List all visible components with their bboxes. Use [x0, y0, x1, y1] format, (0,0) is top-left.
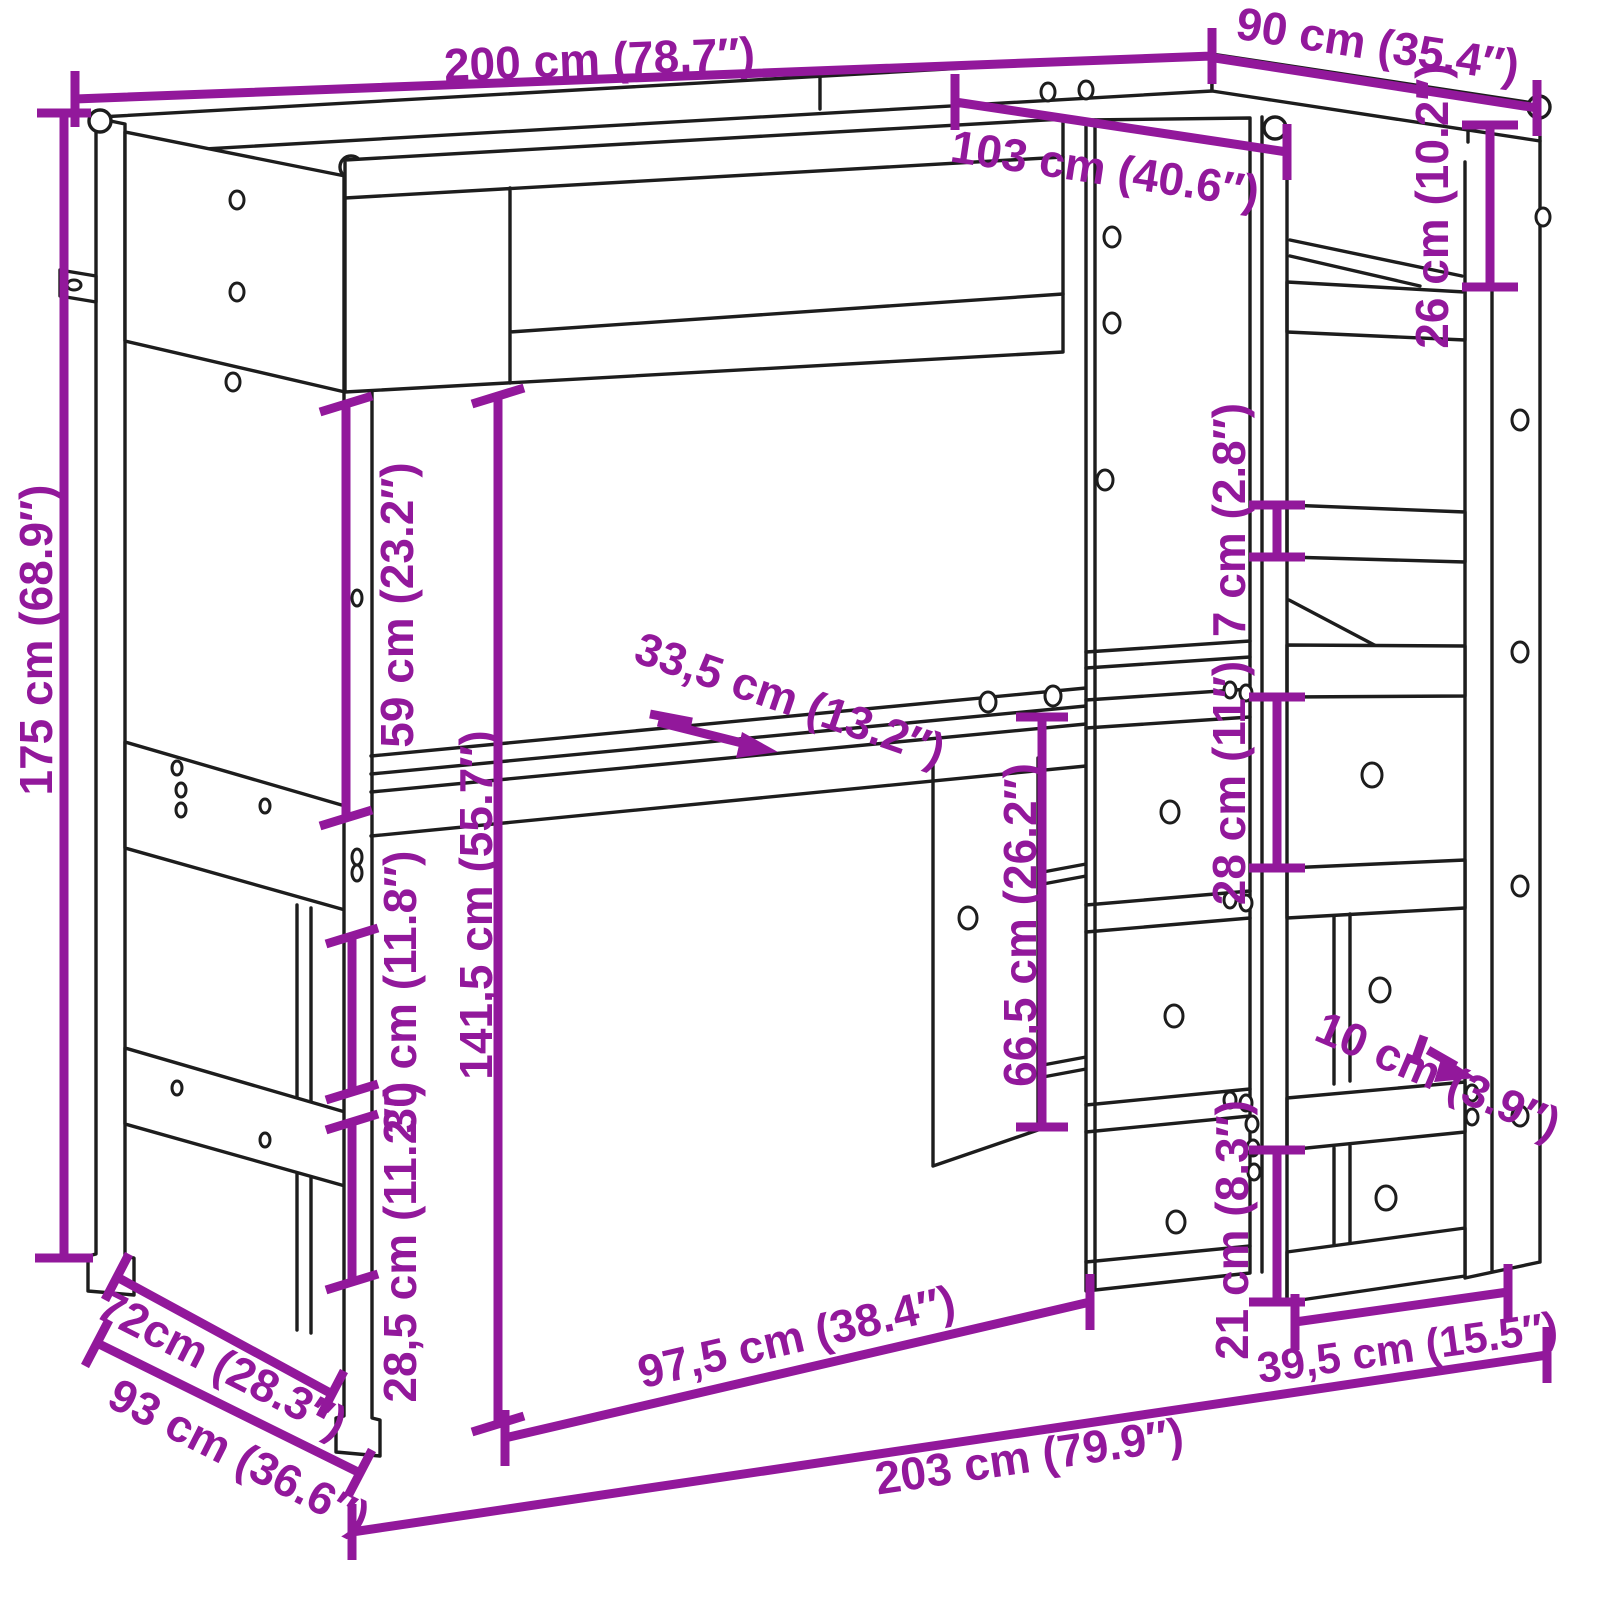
furniture-dimension-diagram: 200 cm (78.7″) 90 cm (35.4″) 103 cm (40.…	[0, 0, 1600, 1600]
diagram-canvas: 200 cm (78.7″) 90 cm (35.4″) 103 cm (40.…	[0, 0, 1600, 1600]
dim-97-5cm-label: 97,5 cm (38.4″)	[633, 1275, 960, 1399]
dim-7cm-label: 7 cm (2.8″)	[1203, 403, 1255, 637]
left-back-post	[60, 110, 134, 1295]
side-shelf-unit	[1287, 240, 1465, 1302]
dim-28cm-label: 28 cm (11″)	[1203, 661, 1255, 906]
dim-175cm-label: 175 cm (68.9″)	[10, 485, 62, 796]
dim-21cm-label: 21 cm (8.3″)	[1206, 1100, 1258, 1360]
dim-26cm-label: 26 cm (10.2″)	[1406, 63, 1458, 348]
headboard-panels	[125, 132, 345, 1333]
dim-141-5cm-label: 141,5 cm (55.7″)	[450, 730, 502, 1079]
dim-28-5cm: 28,5 cm (11.2″)	[326, 1081, 426, 1402]
dim-203cm-label: 203 cm (79.9″)	[871, 1408, 1186, 1505]
dim-28-5cm-label: 28,5 cm (11.2″)	[374, 1081, 426, 1402]
structure-lines	[60, 54, 1550, 1456]
dim-66-5cm-label: 66,5 cm (26.2″)	[994, 763, 1046, 1087]
dim-59cm-label: 59 cm (23.2″)	[371, 462, 423, 747]
dim-141-5cm: 141,5 cm (55.7″)	[450, 388, 524, 1432]
dim-28cm: 28 cm (11″)	[1203, 661, 1305, 906]
dim-66-5cm: 66,5 cm (26.2″)	[994, 717, 1068, 1127]
